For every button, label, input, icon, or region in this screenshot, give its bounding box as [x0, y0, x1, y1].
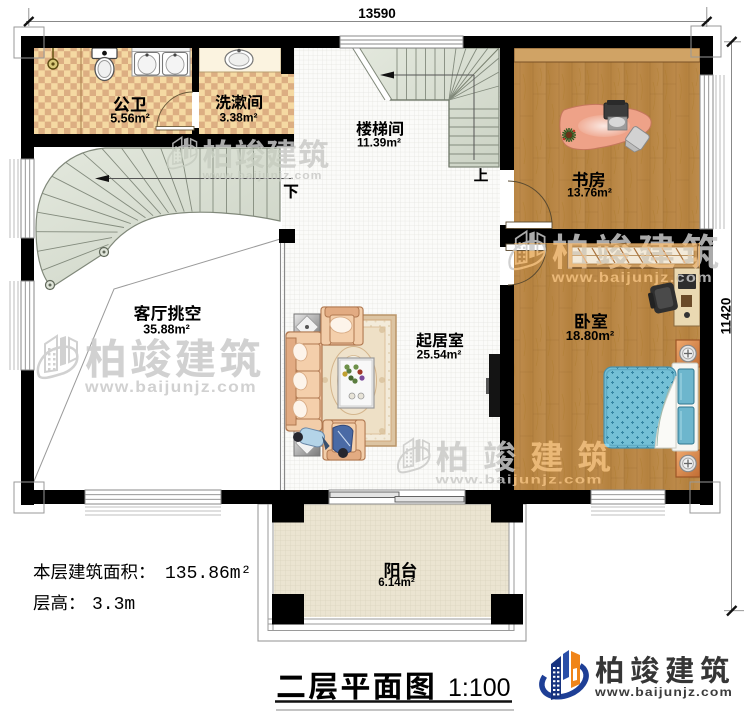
svg-text:11420: 11420 — [719, 298, 734, 335]
svg-text:3.38m²: 3.38m² — [219, 111, 257, 125]
svg-text:www.baijunjz.com: www.baijunjz.com — [551, 269, 713, 285]
svg-text:www.baijunjz.com: www.baijunjz.com — [201, 170, 322, 182]
svg-text:35.88m²: 35.88m² — [143, 322, 190, 336]
svg-text:www.baijunjz.com: www.baijunjz.com — [84, 379, 257, 396]
svg-text:11.39m²: 11.39m² — [357, 136, 401, 150]
svg-text:www.baijunjz.com: www.baijunjz.com — [434, 473, 603, 487]
svg-text:www.baijunjz.com: www.baijunjz.com — [594, 685, 733, 699]
svg-text:1:100: 1:100 — [448, 674, 511, 702]
svg-text:5.56m²: 5.56m² — [110, 111, 150, 125]
svg-text:3.3m: 3.3m — [92, 595, 135, 615]
svg-text:13590: 13590 — [358, 6, 396, 21]
svg-text:18.80m²: 18.80m² — [566, 328, 615, 343]
svg-text:25.54m²: 25.54m² — [417, 348, 462, 362]
svg-text:13.76m²: 13.76m² — [567, 186, 612, 200]
svg-text:6.14m²: 6.14m² — [378, 577, 415, 589]
svg-text:135.86m²: 135.86m² — [165, 564, 251, 584]
